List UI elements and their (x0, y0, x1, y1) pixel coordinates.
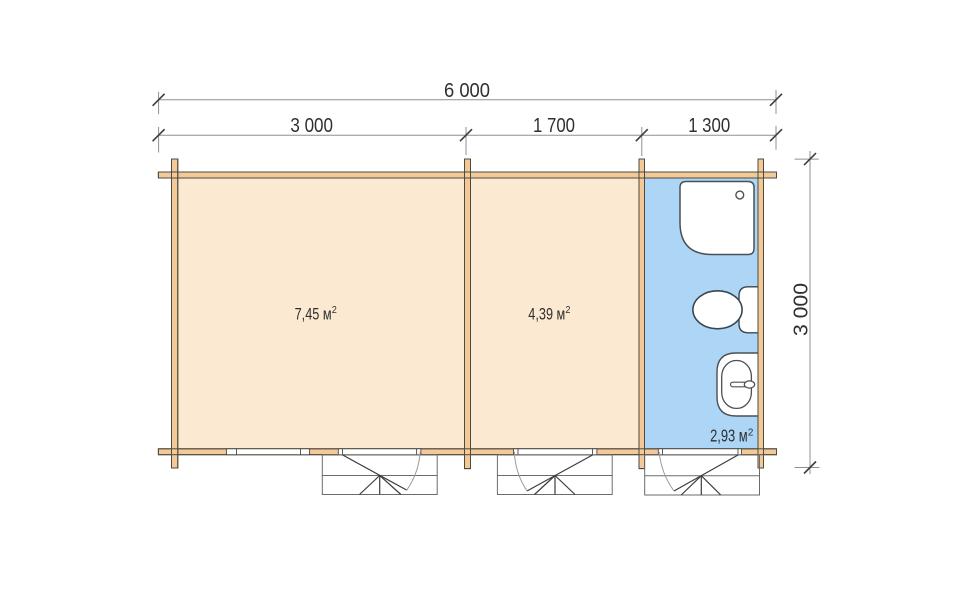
svg-text:2,93 м: 2,93 м (710, 426, 748, 446)
svg-text:2: 2 (565, 304, 570, 316)
svg-text:1 300: 1 300 (688, 115, 730, 137)
svg-text:4,39 м: 4,39 м (528, 304, 565, 323)
svg-text:6 000: 6 000 (444, 80, 490, 102)
svg-text:2: 2 (332, 304, 337, 316)
svg-text:2: 2 (748, 426, 754, 438)
svg-text:3 000: 3 000 (790, 283, 813, 336)
svg-text:1 700: 1 700 (533, 115, 575, 137)
svg-text:7,45 м: 7,45 м (295, 304, 332, 323)
svg-text:3 000: 3 000 (290, 115, 333, 137)
